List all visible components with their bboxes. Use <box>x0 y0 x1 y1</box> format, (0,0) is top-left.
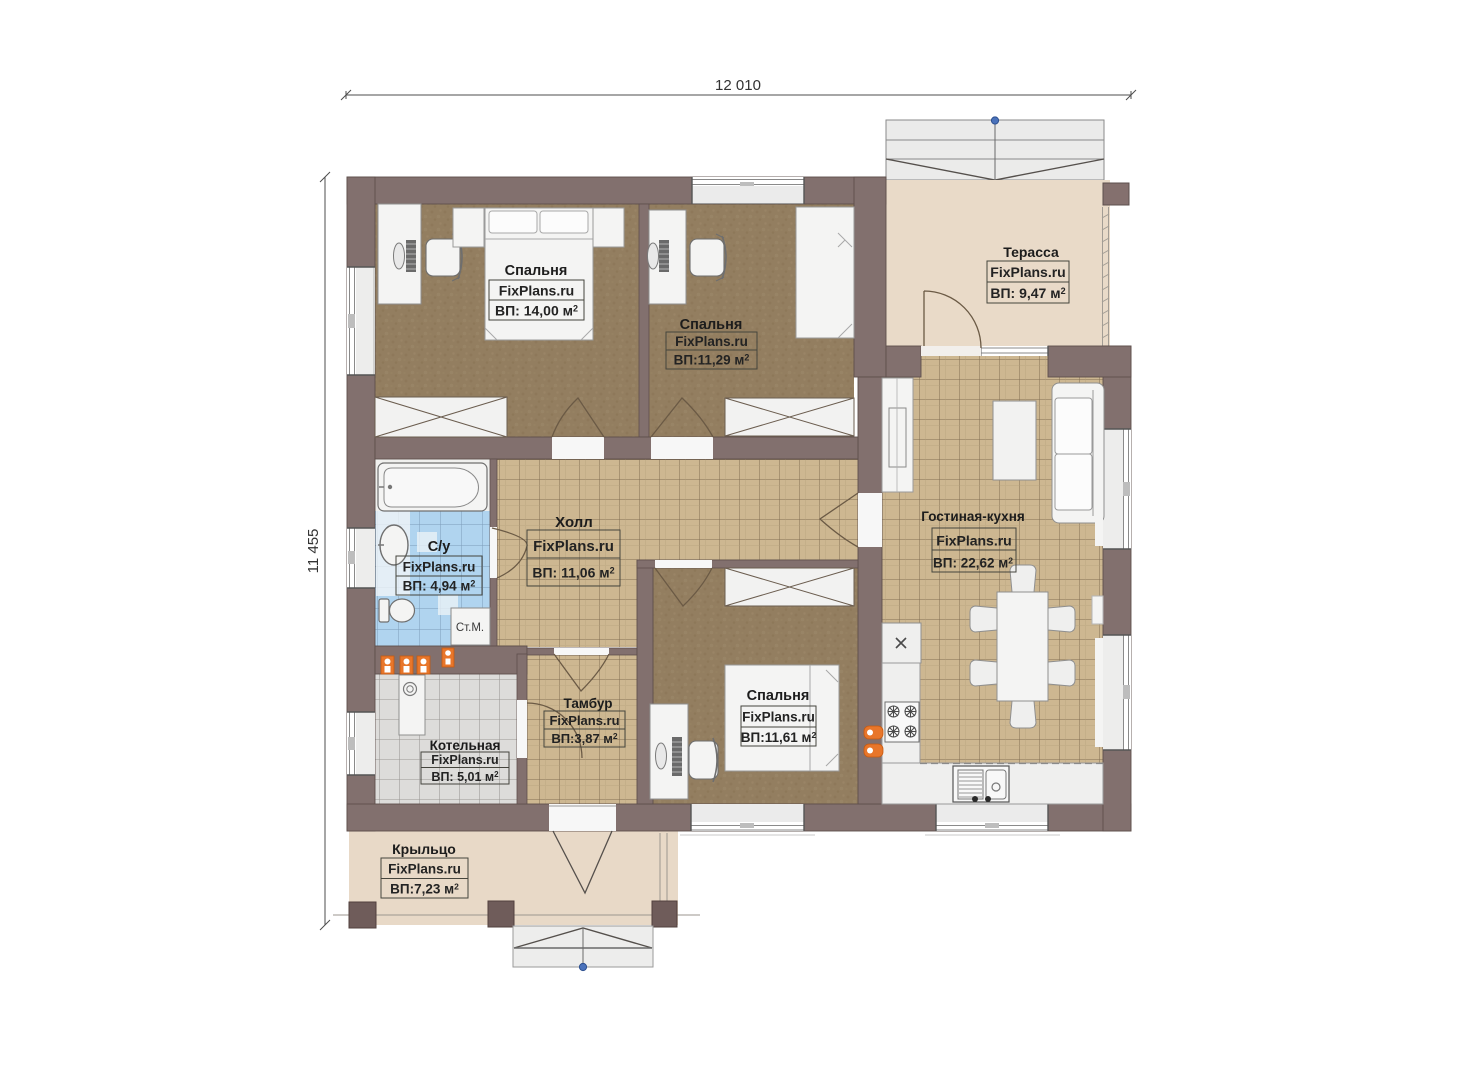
svg-text:Крыльцо: Крыльцо <box>392 841 456 857</box>
svg-text:FixPlans.ru: FixPlans.ru <box>403 560 476 575</box>
svg-text:12 010: 12 010 <box>715 77 761 94</box>
svg-text:ВП:11,29 м2: ВП:11,29 м2 <box>674 353 750 368</box>
svg-text:FixPlans.ru: FixPlans.ru <box>549 713 619 728</box>
svg-text:Спальня: Спальня <box>680 317 743 333</box>
svg-text:FixPlans.ru: FixPlans.ru <box>499 283 574 299</box>
svg-text:FixPlans.ru: FixPlans.ru <box>990 264 1065 280</box>
svg-text:С/у: С/у <box>428 539 451 555</box>
svg-text:Котельная: Котельная <box>430 738 501 753</box>
svg-text:Спальня: Спальня <box>505 263 568 279</box>
svg-text:FixPlans.ru: FixPlans.ru <box>388 862 461 877</box>
svg-text:ВП: 14,00 м2: ВП: 14,00 м2 <box>495 303 578 319</box>
svg-text:ВП: 4,94 м2: ВП: 4,94 м2 <box>403 579 476 594</box>
svg-text:FixPlans.ru: FixPlans.ru <box>675 334 748 349</box>
svg-text:ВП: 22,62 м2: ВП: 22,62 м2 <box>933 556 1013 571</box>
svg-text:Ст.М.: Ст.М. <box>456 622 484 634</box>
svg-text:ВП: 5,01 м2: ВП: 5,01 м2 <box>431 770 499 784</box>
svg-text:FixPlans.ru: FixPlans.ru <box>533 538 614 555</box>
svg-text:FixPlans.ru: FixPlans.ru <box>742 710 815 725</box>
svg-text:FixPlans.ru: FixPlans.ru <box>936 533 1011 549</box>
svg-text:Тамбур: Тамбур <box>564 696 613 711</box>
svg-text:ВП:11,61 м2: ВП:11,61 м2 <box>741 730 817 745</box>
svg-text:11 455: 11 455 <box>305 529 322 574</box>
svg-text:ВП:7,23 м2: ВП:7,23 м2 <box>390 882 459 897</box>
svg-text:ВП:3,87 м2: ВП:3,87 м2 <box>551 731 618 746</box>
svg-text:Гостиная-кухня: Гостиная-кухня <box>921 509 1024 524</box>
svg-text:ВП: 11,06 м2: ВП: 11,06 м2 <box>532 565 614 581</box>
svg-text:Терасса: Терасса <box>1003 244 1059 260</box>
svg-text:Спальня: Спальня <box>747 688 810 704</box>
svg-text:Холл: Холл <box>555 514 593 531</box>
svg-text:ВП: 9,47 м2: ВП: 9,47 м2 <box>990 285 1065 301</box>
svg-text:FixPlans.ru: FixPlans.ru <box>431 753 498 767</box>
